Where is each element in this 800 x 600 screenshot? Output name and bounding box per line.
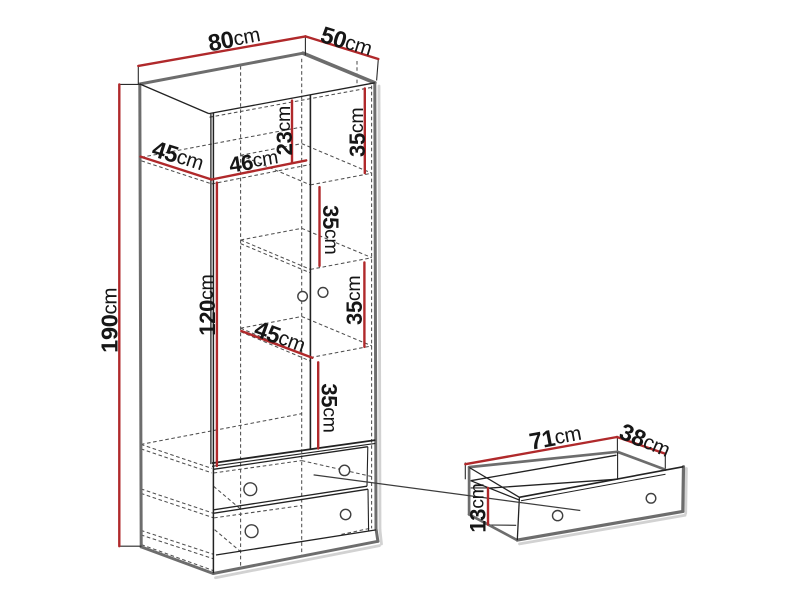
- svg-text:50cm: 50cm: [318, 21, 376, 61]
- svg-text:45cm: 45cm: [149, 136, 207, 177]
- svg-text:45cm: 45cm: [251, 316, 309, 358]
- svg-text:35cm: 35cm: [318, 205, 343, 254]
- svg-text:23cm: 23cm: [272, 106, 297, 155]
- svg-text:35cm: 35cm: [344, 108, 369, 157]
- svg-text:120cm: 120cm: [194, 274, 219, 335]
- svg-text:190cm: 190cm: [97, 288, 123, 353]
- svg-text:71cm: 71cm: [527, 420, 583, 455]
- svg-text:80cm: 80cm: [206, 21, 262, 56]
- svg-text:35cm: 35cm: [317, 383, 342, 432]
- svg-text:13cm: 13cm: [465, 483, 490, 532]
- svg-text:35cm: 35cm: [341, 276, 366, 325]
- svg-text:38cm: 38cm: [616, 418, 674, 462]
